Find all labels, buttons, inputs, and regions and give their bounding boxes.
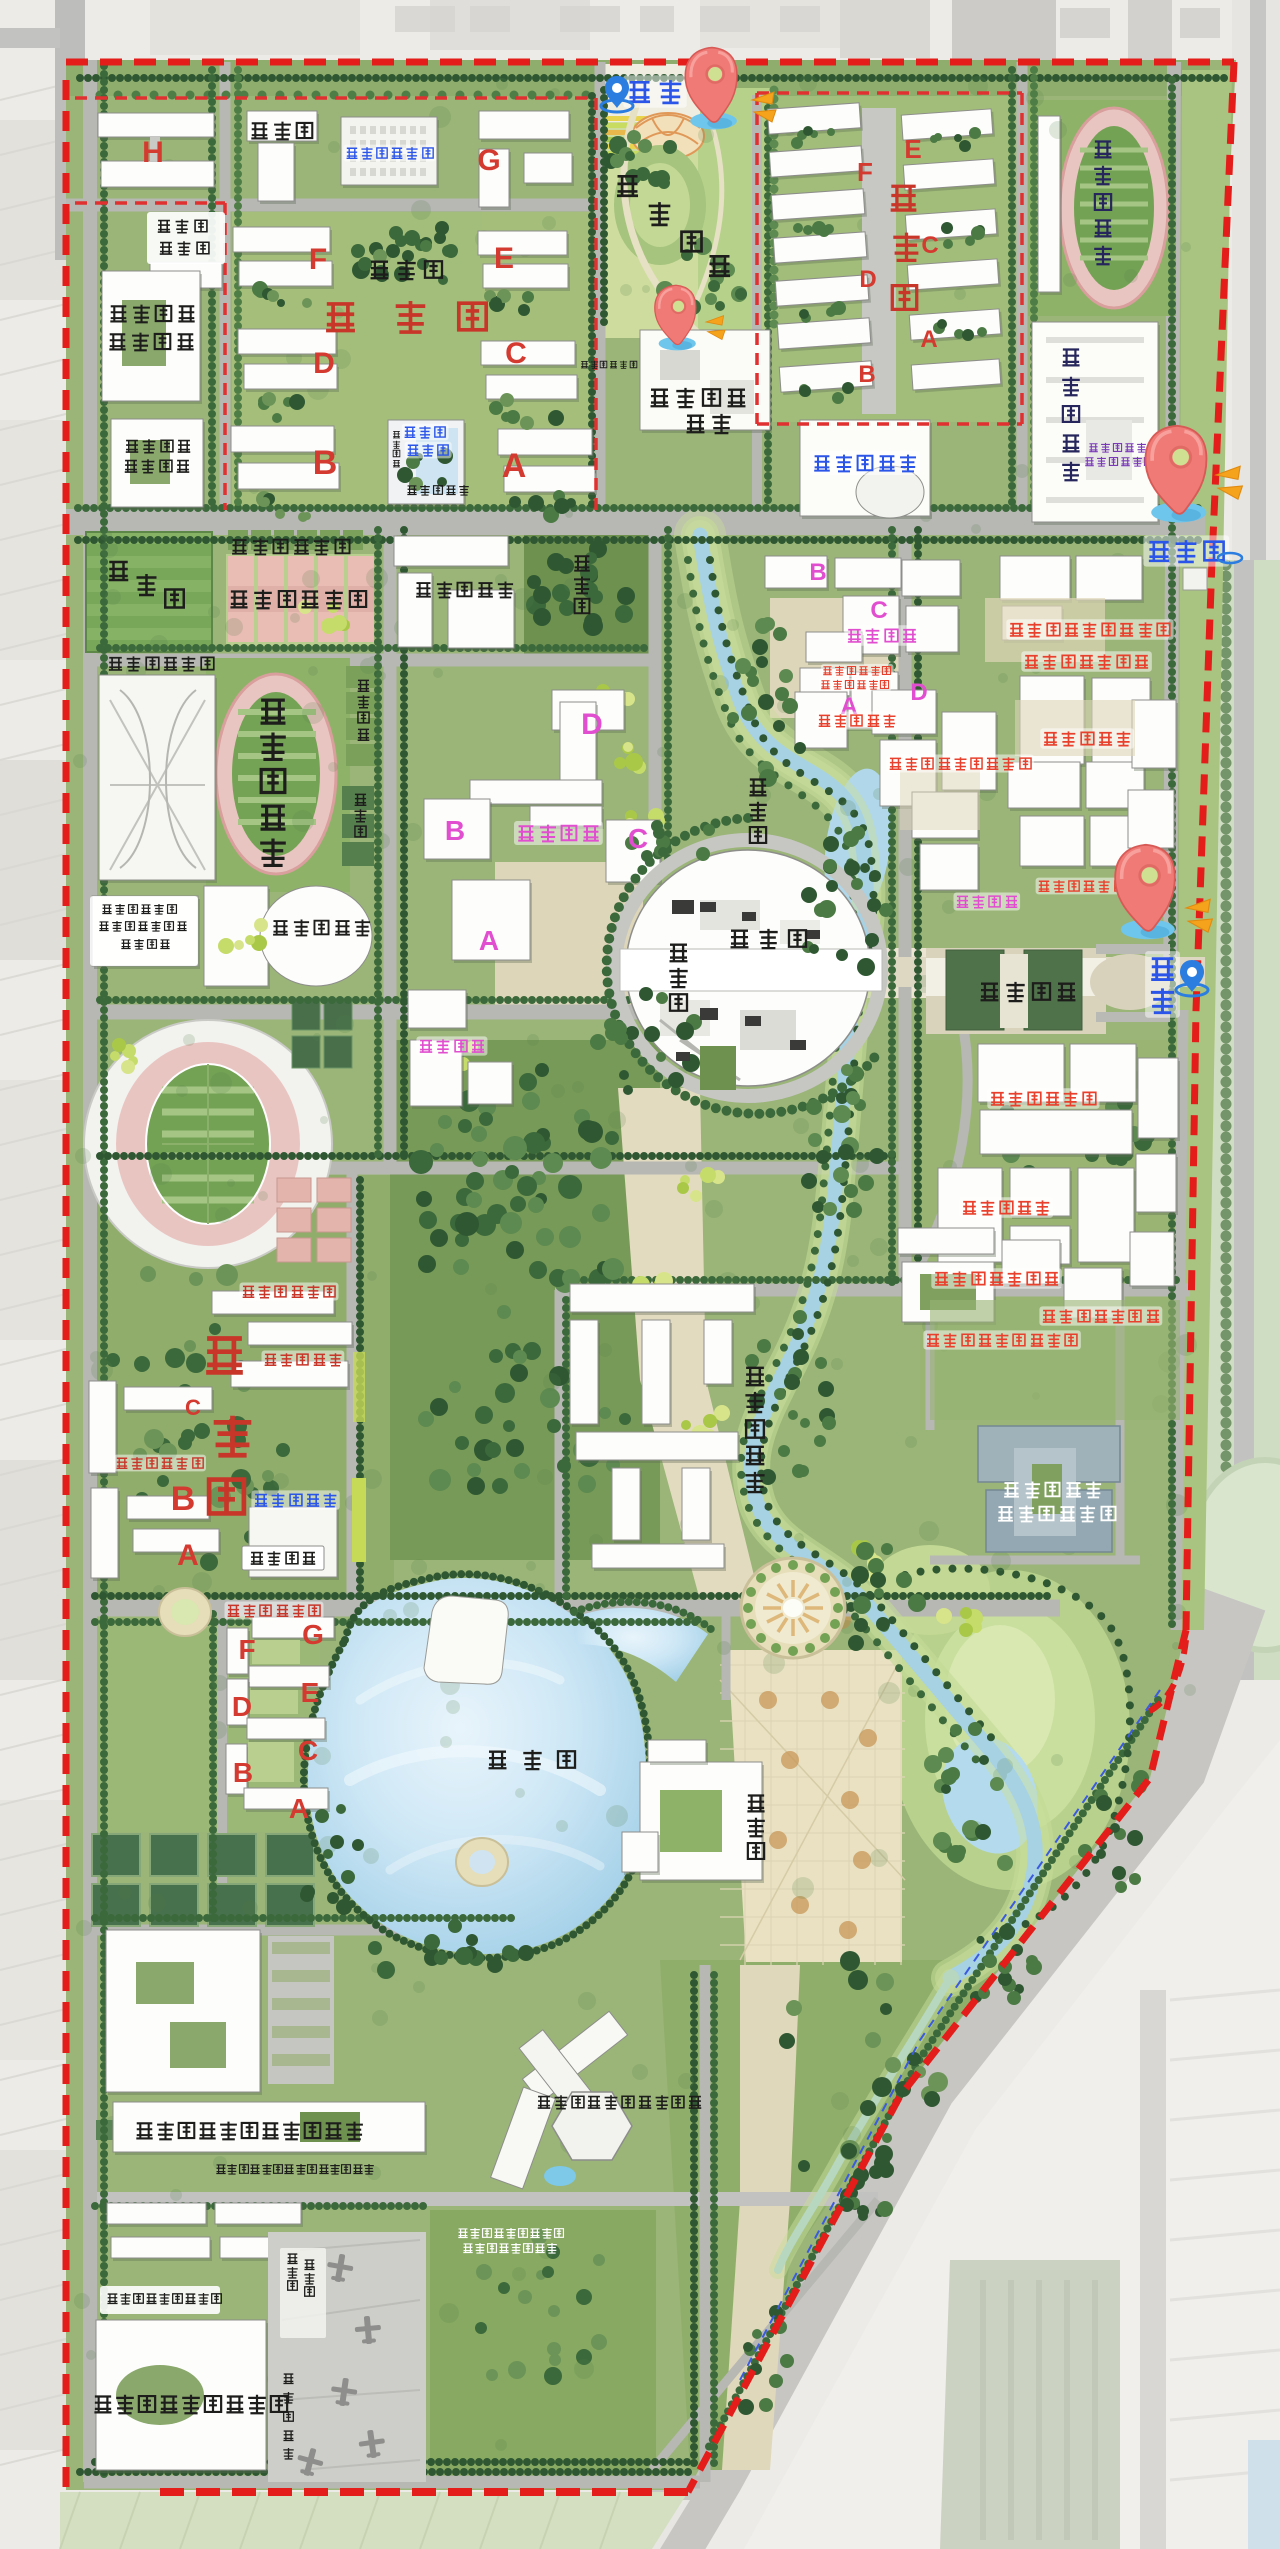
svg-text:C: C — [298, 1735, 318, 1766]
svg-text:E: E — [904, 134, 921, 164]
svg-text:A: A — [289, 1793, 309, 1824]
svg-text:B: B — [445, 815, 465, 846]
svg-text:D: D — [910, 679, 927, 706]
svg-text:D: D — [859, 266, 876, 293]
svg-text:B: B — [858, 361, 875, 388]
svg-text:D: D — [313, 347, 335, 380]
svg-text:F: F — [238, 1634, 255, 1665]
svg-text:C: C — [628, 823, 648, 854]
svg-text:F: F — [857, 157, 873, 187]
svg-text:G: G — [302, 1619, 324, 1650]
svg-text:C: C — [870, 597, 887, 624]
svg-text:E: E — [301, 1677, 320, 1708]
svg-text:C: C — [505, 337, 527, 370]
svg-text:A: A — [479, 925, 499, 956]
svg-text:H: H — [142, 136, 164, 169]
svg-text:E: E — [494, 242, 514, 275]
svg-text:C: C — [921, 232, 938, 259]
svg-text:A: A — [177, 1539, 199, 1572]
svg-text:A: A — [502, 447, 527, 485]
svg-text:B: B — [233, 1757, 253, 1788]
svg-text:C: C — [185, 1395, 201, 1420]
svg-text:F: F — [309, 243, 327, 276]
svg-text:B: B — [171, 1480, 196, 1518]
svg-text:A: A — [920, 326, 937, 353]
svg-text:B: B — [313, 444, 338, 482]
svg-text:G: G — [477, 144, 500, 177]
svg-text:D: D — [581, 708, 603, 741]
svg-text:B: B — [809, 559, 826, 586]
svg-text:D: D — [232, 1691, 252, 1722]
